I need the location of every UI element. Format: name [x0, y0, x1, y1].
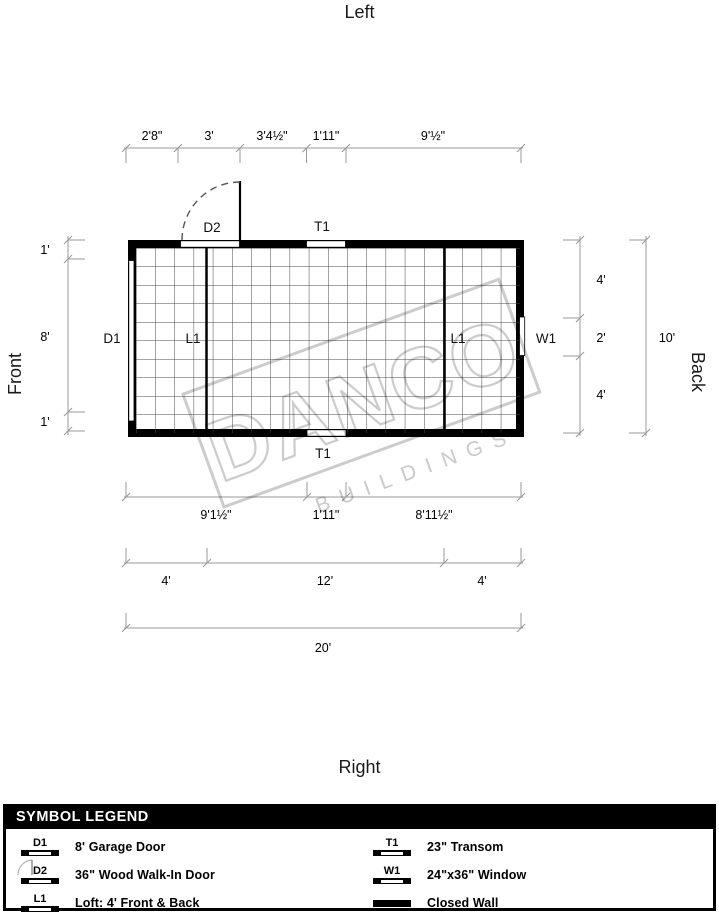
l1-description: Loft: 4' Front & Back	[75, 896, 200, 910]
closed-wall-symbol	[371, 898, 413, 907]
d1-symbol: D1	[19, 838, 61, 856]
legend-item-d1: D1 8' Garage Door	[19, 836, 371, 857]
dim-top-3: 3'4½"	[256, 129, 287, 143]
l1-symbol: L1	[19, 894, 61, 912]
transom-opening-t1-top	[307, 241, 346, 247]
dimension-top	[122, 144, 525, 163]
dim-right-1: 4'	[596, 273, 605, 287]
d2-symbol: D2	[19, 866, 61, 884]
dim-left-1: 1'	[40, 243, 49, 257]
legend-item-l1: L1 Loft: 4' Front & Back	[19, 892, 371, 913]
legend-item-t1: T1 23" Transom	[371, 836, 526, 857]
w1-description: 24"x36" Window	[427, 868, 526, 882]
legend-body: D1 8' Garage Door D2 36" Wood Walk-In Do…	[6, 829, 713, 913]
t1-description: 23" Transom	[427, 840, 504, 854]
dim-bottom2-2: 12'	[317, 574, 333, 588]
dim-bottom1-1: 9'1½"	[200, 508, 231, 522]
transom-bar-icon	[373, 850, 411, 856]
dim-right-3: 4'	[596, 388, 605, 402]
dimension-left	[64, 236, 85, 435]
d2-code: D2	[33, 866, 47, 877]
legend-item-w1: W1 24"x36" Window	[371, 864, 526, 885]
dimension-bottom-row2	[122, 548, 525, 567]
closed-wall-bar-icon	[373, 900, 411, 907]
dim-left-3: 1'	[40, 415, 49, 429]
t1-code: T1	[386, 838, 399, 849]
legend-title: SYMBOL LEGEND	[6, 807, 713, 829]
dim-right-total: 10'	[659, 331, 675, 345]
label-t1-top: T1	[314, 219, 330, 234]
dim-bottom1-3: 8'11½"	[415, 508, 452, 522]
legend-column-right: T1 23" Transom W1 24"x36" Window	[371, 836, 526, 913]
door-bar-icon	[21, 878, 59, 884]
label-l1-left: L1	[185, 331, 200, 346]
dim-top-5: 9'½"	[421, 129, 445, 143]
dim-top-1: 2'8"	[142, 129, 163, 143]
dim-bottom2-1: 4'	[161, 574, 170, 588]
d1-description: 8' Garage Door	[75, 840, 166, 854]
symbol-legend: SYMBOL LEGEND D1 8' Garage Door D2	[3, 804, 716, 911]
dim-bottom2-3: 4'	[477, 574, 486, 588]
legend-column-left: D1 8' Garage Door D2 36" Wood Walk-In Do…	[19, 836, 371, 913]
label-d1: D1	[103, 331, 120, 346]
dimension-right-total	[629, 236, 650, 437]
closed-wall-description: Closed Wall	[427, 896, 498, 910]
dim-left-2: 8'	[40, 330, 49, 344]
label-d2: D2	[203, 220, 220, 235]
dim-right-2: 2'	[596, 331, 605, 345]
walk-in-door-opening-d2	[181, 241, 240, 247]
d1-code: D1	[33, 838, 47, 849]
window-bar-icon	[373, 878, 411, 884]
l1-code: L1	[34, 894, 47, 905]
w1-symbol: W1	[371, 866, 413, 884]
garage-door-opening-d1	[129, 261, 134, 422]
dimension-right-sections	[563, 236, 584, 437]
floor-plan-page: Left Front Back Right 2'8" 3' 3'4½" 1'11…	[0, 0, 719, 915]
legend-item-d2: D2 36" Wood Walk-In Door	[19, 864, 371, 885]
door-bar-icon	[21, 850, 59, 856]
w1-code: W1	[384, 866, 401, 877]
t1-symbol: T1	[371, 838, 413, 856]
dim-top-2: 3'	[204, 129, 213, 143]
loft-bar-icon	[21, 906, 59, 912]
dim-top-4: 1'11"	[313, 129, 340, 143]
dimension-bottom-total	[122, 613, 525, 632]
floor-plan-drawing: 2'8" 3' 3'4½" 1'11" 9'½" 1' 8' 1' 4' 2' …	[0, 0, 719, 915]
dim-bottom-total: 20'	[315, 641, 331, 655]
label-w1: W1	[536, 331, 556, 346]
legend-item-closed-wall: Closed Wall	[371, 892, 526, 913]
d2-description: 36" Wood Walk-In Door	[75, 868, 215, 882]
